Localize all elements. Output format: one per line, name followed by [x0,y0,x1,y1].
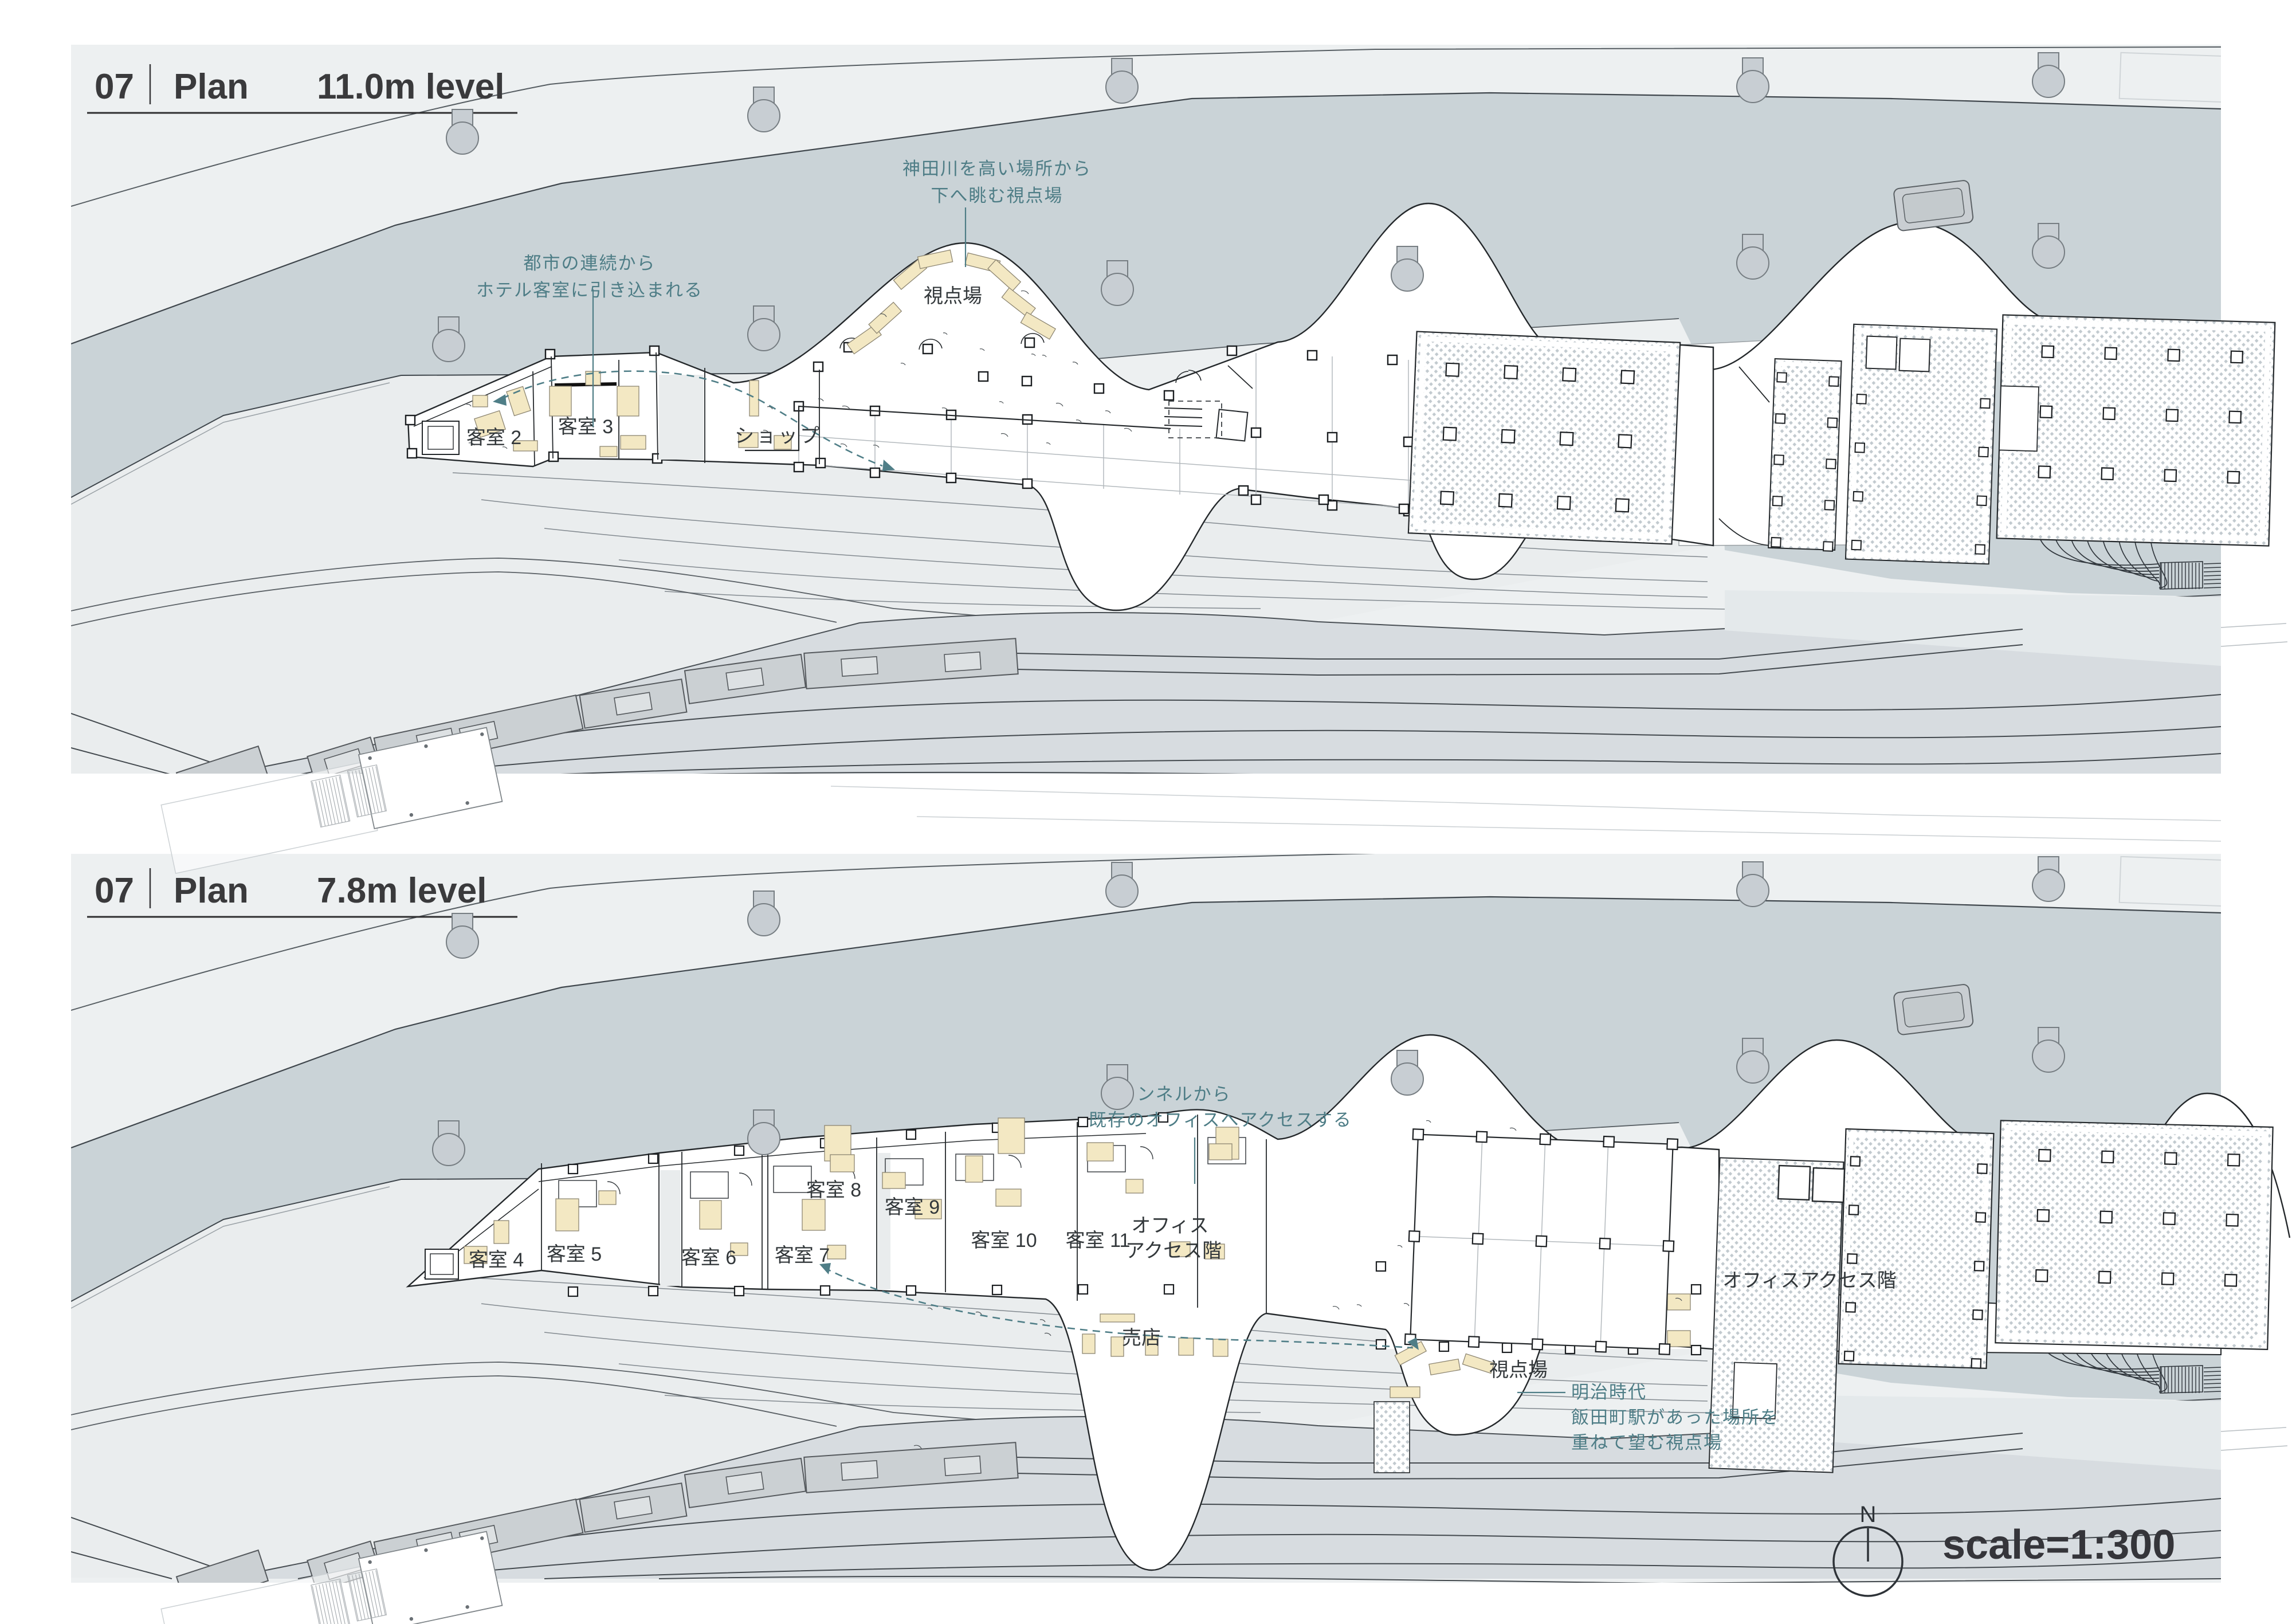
svg-text:客室 2: 客室 2 [466,427,521,449]
svg-text:07: 07 [95,871,134,911]
svg-text:客室 5: 客室 5 [547,1244,602,1265]
svg-text:売店: 売店 [1122,1327,1161,1349]
svg-text:飯田町駅があった場所を: 飯田町駅があった場所を [1571,1407,1779,1427]
svg-text:客室 11: 客室 11 [1066,1230,1131,1252]
svg-text:客室 4: 客室 4 [469,1249,524,1271]
svg-text:下へ眺む視点場: 下へ眺む視点場 [931,186,1063,206]
svg-text:視点場: 視点場 [1489,1359,1548,1381]
svg-text:ホテル客室に引き込まれる: ホテル客室に引き込まれる [476,280,703,300]
svg-text:重ねて望む視点場: 重ねて望む視点場 [1571,1433,1722,1453]
svg-text:11.0m level: 11.0m level [317,67,505,107]
svg-text:神田川を高い場所から: 神田川を高い場所から [902,159,1092,179]
svg-text:客室 6: 客室 6 [681,1247,736,1269]
svg-text:07: 07 [95,67,134,107]
svg-text:客室 3: 客室 3 [558,416,613,438]
svg-text:客室 7: 客室 7 [775,1245,830,1266]
svg-text:オフィスアクセス階: オフィスアクセス階 [1722,1270,1897,1292]
svg-text:客室 8: 客室 8 [806,1179,861,1201]
svg-text:明治時代: 明治時代 [1571,1382,1647,1402]
svg-text:トンネルから: トンネルから [1118,1084,1231,1104]
svg-text:客室 9: 客室 9 [885,1197,940,1218]
svg-text:都市の連続から: 都市の連続から [524,253,656,273]
svg-text:アクセス階: アクセス階 [1125,1240,1222,1262]
svg-text:既存のオフィスへアクセスする: 既存のオフィスへアクセスする [1089,1110,1352,1130]
svg-text:Plan: Plan [174,67,249,107]
svg-text:オフィス: オフィス [1131,1215,1208,1237]
svg-text:scale=1:300: scale=1:300 [1942,1522,2175,1568]
svg-text:客室 10: 客室 10 [971,1230,1037,1252]
svg-text:視点場: 視点場 [924,285,982,307]
svg-text:7.8m level: 7.8m level [317,871,486,911]
svg-text:Plan: Plan [174,871,249,911]
svg-text:ショップ: ショップ [735,425,822,447]
svg-text:N: N [1860,1502,1877,1527]
